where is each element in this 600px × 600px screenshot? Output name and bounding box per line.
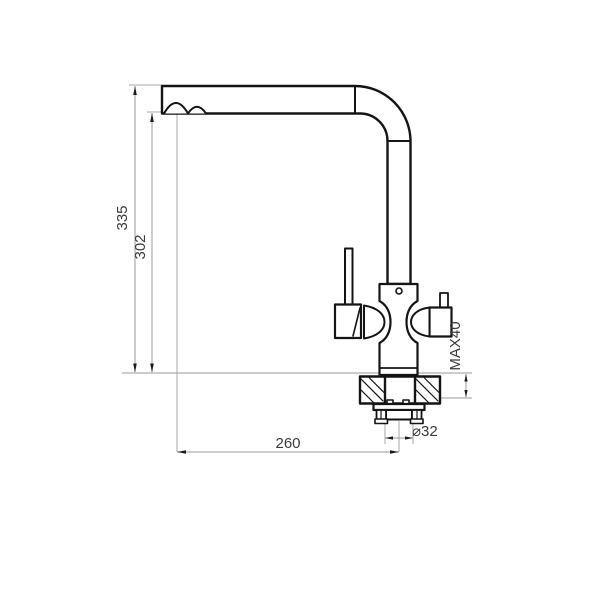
arrow-302-top bbox=[150, 113, 154, 122]
body-screw-hole bbox=[396, 288, 402, 294]
left-joint-cap bbox=[364, 306, 385, 339]
faucet-body bbox=[380, 284, 418, 375]
mixer-lever bbox=[345, 249, 353, 306]
faucet-technical-drawing: 335 302 260 ⌀32 MAX40 bbox=[0, 0, 600, 600]
label-spout-height: 302 bbox=[132, 234, 149, 259]
shank-center-block bbox=[386, 410, 412, 420]
arrow-260-left bbox=[177, 450, 186, 454]
arrow-max40-top bbox=[464, 374, 467, 382]
filter-knob-tab bbox=[440, 293, 448, 308]
drawing-canvas: 335 302 260 ⌀32 MAX40 bbox=[0, 0, 600, 600]
label-hole-diameter: ⌀32 bbox=[412, 423, 438, 440]
arrow-335-top bbox=[133, 86, 137, 95]
label-spout-reach: 260 bbox=[275, 435, 300, 452]
hose-foot-left bbox=[375, 419, 388, 424]
arrow-max40-bottom bbox=[464, 390, 467, 398]
right-joint-cap bbox=[411, 308, 430, 337]
arrow-302-bottom bbox=[150, 364, 154, 373]
label-max-mount-thickness: MAX40 bbox=[447, 321, 464, 370]
arrow-diam32-left bbox=[385, 436, 393, 439]
spout-and-riser bbox=[162, 86, 411, 284]
arrow-260-right bbox=[390, 450, 399, 454]
label-total-height: 335 bbox=[114, 205, 131, 230]
arrow-335-bottom bbox=[133, 364, 137, 373]
